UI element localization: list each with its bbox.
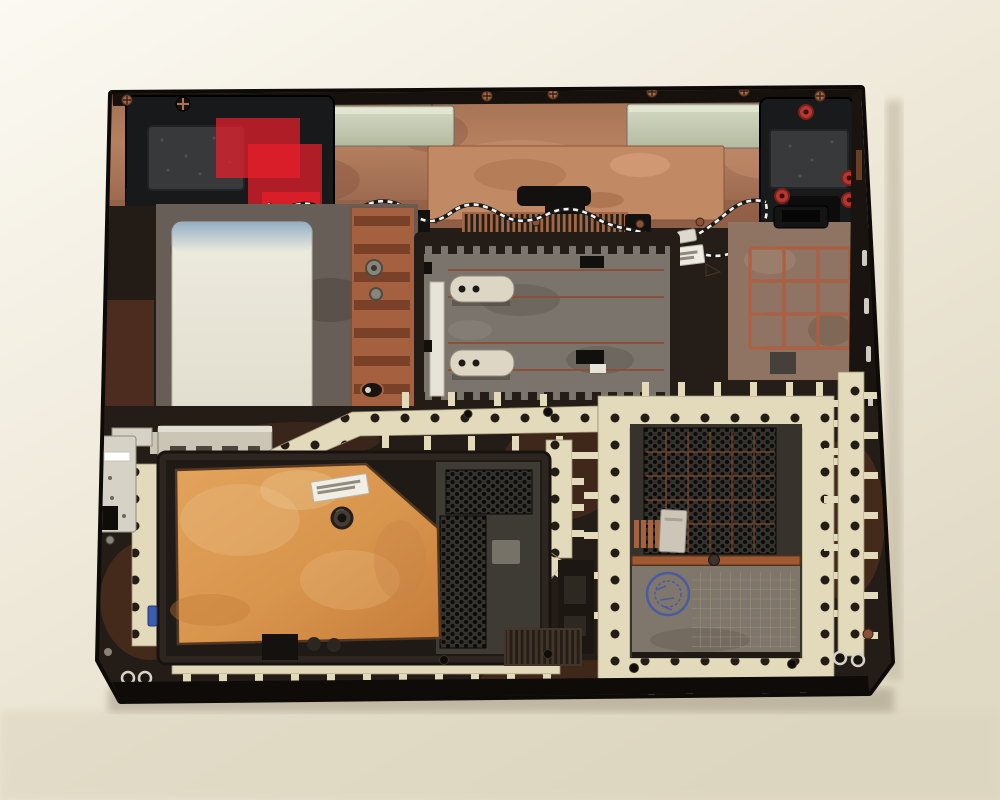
table-lower-shade (0, 710, 1000, 800)
white-pull-tab (659, 509, 687, 552)
battery-latch-upper (450, 276, 514, 306)
blue-connector (148, 606, 157, 626)
speaker-foam-pad (770, 130, 848, 188)
photo-stage: Photograph of an opened laptop bottom ca… (0, 0, 1000, 800)
battery-latch-lower (450, 350, 514, 380)
stamped-panel (632, 566, 800, 654)
bay-white-bar (430, 282, 444, 396)
bottom-vent-fins (504, 628, 582, 666)
battery-bay (414, 232, 680, 412)
cable-tag (677, 229, 697, 244)
copper-foil-access-door (170, 464, 440, 652)
laptop-case-photo (0, 0, 1000, 800)
white-insulator-sheet (172, 222, 314, 430)
bracket-mini-label (104, 452, 130, 461)
copper-grid-stiffener (728, 206, 862, 380)
door-latch-notch (262, 634, 298, 660)
door-center-screw (332, 508, 352, 528)
fan-intake-bay (630, 424, 802, 658)
hex-mesh-vents (436, 462, 540, 654)
